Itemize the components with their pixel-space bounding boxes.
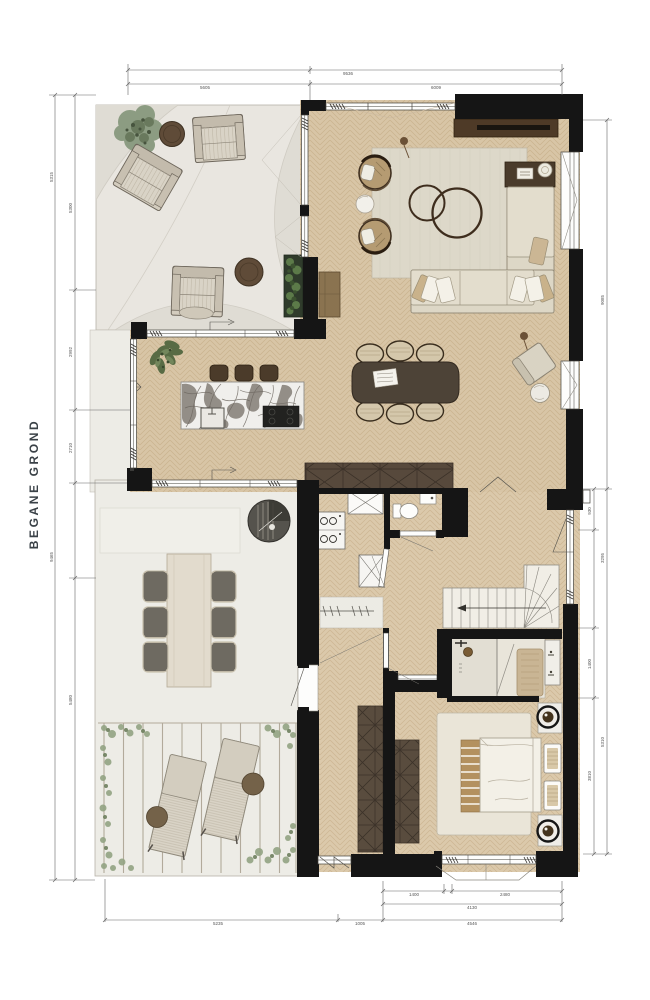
svg-text:9536: 9536 bbox=[343, 71, 354, 76]
svg-text:930: 930 bbox=[587, 507, 592, 515]
svg-text:5235: 5235 bbox=[213, 921, 224, 926]
svg-text:1400: 1400 bbox=[587, 658, 592, 669]
svg-text:2480: 2480 bbox=[500, 892, 511, 897]
svg-text:5300: 5300 bbox=[68, 202, 73, 213]
svg-text:9465: 9465 bbox=[49, 551, 54, 562]
svg-text:5315: 5315 bbox=[49, 171, 54, 182]
svg-text:1005: 1005 bbox=[355, 921, 366, 926]
svg-text:3295: 3295 bbox=[600, 552, 605, 563]
svg-text:2710: 2710 bbox=[68, 442, 73, 453]
svg-text:2992: 2992 bbox=[68, 346, 73, 357]
svg-text:4130: 4130 bbox=[467, 905, 478, 910]
svg-text:3810: 3810 bbox=[587, 770, 592, 781]
svg-text:6009: 6009 bbox=[431, 85, 442, 90]
svg-text:1400: 1400 bbox=[409, 892, 420, 897]
svg-text:5480: 5480 bbox=[68, 694, 73, 705]
svg-text:9085: 9085 bbox=[600, 294, 605, 305]
svg-text:5310: 5310 bbox=[600, 736, 605, 747]
svg-text:5605: 5605 bbox=[200, 85, 211, 90]
svg-text:4546: 4546 bbox=[467, 921, 478, 926]
svg-text:BEGANE GROND: BEGANE GROND bbox=[27, 419, 41, 550]
